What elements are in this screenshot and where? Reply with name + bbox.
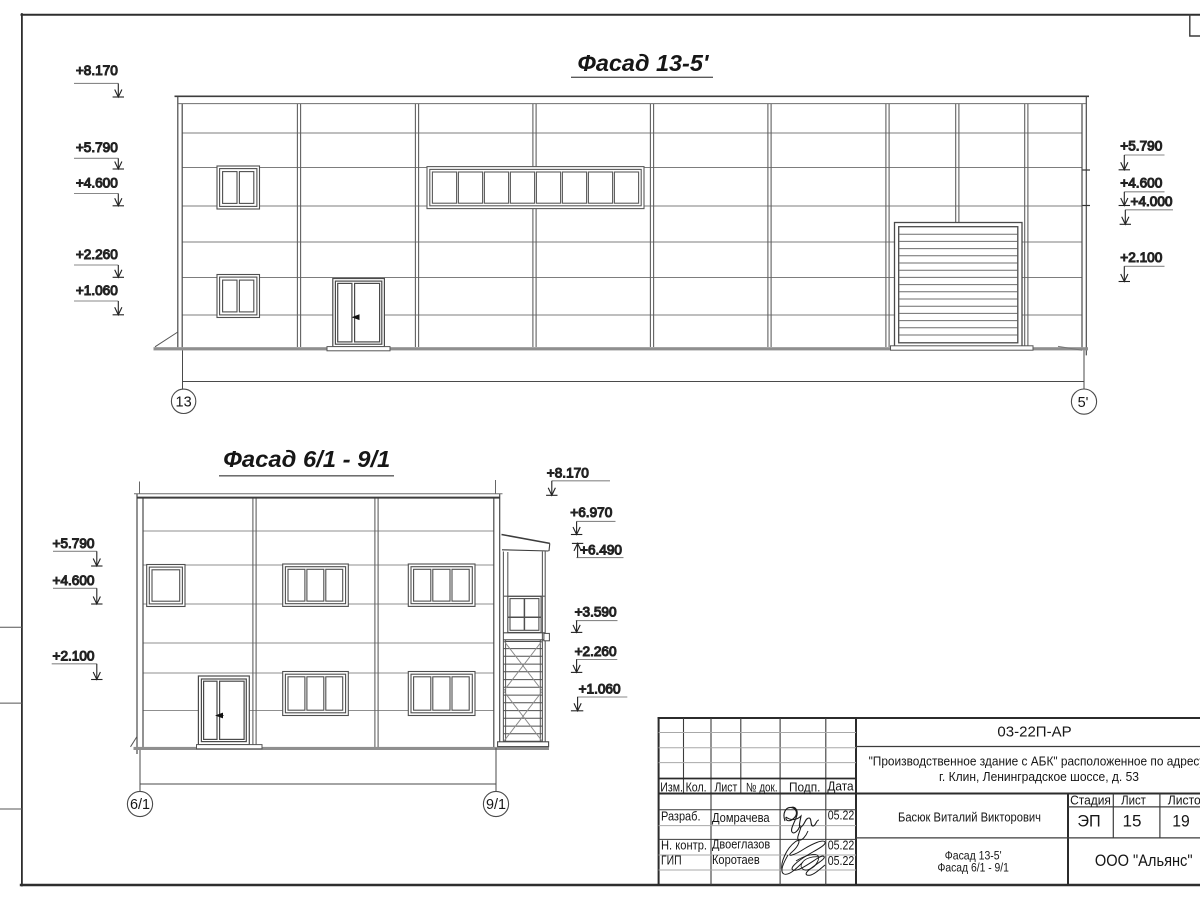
svg-text:№ док.: № док. bbox=[746, 780, 778, 794]
svg-text:+1.060: +1.060 bbox=[579, 681, 621, 696]
svg-text:Дата: Дата bbox=[827, 779, 853, 793]
svg-text:+2.100: +2.100 bbox=[53, 648, 95, 663]
svg-text:Кол.: Кол. bbox=[686, 780, 707, 794]
svg-text:Лист: Лист bbox=[1121, 793, 1146, 807]
svg-text:+4.600: +4.600 bbox=[1120, 175, 1162, 190]
svg-text:+6.490: +6.490 bbox=[580, 543, 622, 558]
svg-text:6/1: 6/1 bbox=[130, 797, 150, 813]
svg-text:5': 5' bbox=[1078, 395, 1089, 411]
svg-text:+2.260: +2.260 bbox=[76, 247, 118, 262]
svg-text:г. Клин, Ленинградское шоссе,: г. Клин, Ленинградское шоссе, д. 53 bbox=[939, 769, 1139, 784]
svg-text:Коротаев: Коротаев bbox=[712, 853, 760, 867]
svg-text:03-22П-АР: 03-22П-АР bbox=[997, 724, 1071, 741]
svg-text:05.22: 05.22 bbox=[828, 809, 855, 823]
svg-text:05.22: 05.22 bbox=[828, 854, 855, 868]
svg-text:Подп.: Подп. bbox=[789, 780, 821, 794]
svg-text:+8.170: +8.170 bbox=[547, 465, 589, 480]
svg-text:Двоеглазов: Двоеглазов bbox=[712, 838, 770, 852]
svg-text:Басюк Виталий Викторович: Басюк Виталий Викторович bbox=[898, 811, 1041, 825]
svg-text:9/1: 9/1 bbox=[486, 797, 506, 813]
svg-text:+1.060: +1.060 bbox=[76, 283, 118, 298]
svg-text:Фасад 6/1 - 9/1: Фасад 6/1 - 9/1 bbox=[223, 446, 390, 472]
svg-text:"Производственное здание с АБК: "Производственное здание с АБК" располож… bbox=[869, 754, 1200, 769]
svg-text:15: 15 bbox=[1123, 812, 1142, 831]
svg-text:19: 19 bbox=[1172, 812, 1190, 831]
svg-text:Фасад 13-5': Фасад 13-5' bbox=[578, 50, 711, 76]
svg-text:Фасад 6/1 - 9/1: Фасад 6/1 - 9/1 bbox=[938, 861, 1009, 875]
svg-text:+5.790: +5.790 bbox=[76, 140, 118, 155]
svg-text:Разраб.: Разраб. bbox=[661, 810, 701, 824]
svg-text:Стадия: Стадия bbox=[1070, 793, 1111, 807]
svg-text:Листов: Листов bbox=[1168, 793, 1200, 807]
svg-text:05.22: 05.22 bbox=[828, 839, 855, 853]
svg-text:Домрачева: Домрачева bbox=[712, 811, 770, 825]
svg-text:+6.970: +6.970 bbox=[570, 505, 612, 520]
svg-text:+5.790: +5.790 bbox=[1120, 139, 1162, 154]
svg-text:+3.590: +3.590 bbox=[575, 604, 617, 619]
svg-text:ЭП: ЭП bbox=[1077, 812, 1100, 831]
svg-text:+5.790: +5.790 bbox=[53, 536, 95, 551]
svg-text:Н. контр.: Н. контр. bbox=[661, 839, 707, 853]
svg-text:13: 13 bbox=[176, 394, 192, 410]
svg-text:+4.000: +4.000 bbox=[1131, 194, 1173, 209]
svg-text:ООО "Альянс": ООО "Альянс" bbox=[1095, 852, 1193, 870]
svg-text:+4.600: +4.600 bbox=[76, 175, 118, 190]
svg-text:Лист: Лист bbox=[715, 780, 738, 794]
svg-text:+2.260: +2.260 bbox=[575, 644, 617, 659]
svg-text:+4.600: +4.600 bbox=[53, 573, 95, 588]
svg-text:+2.100: +2.100 bbox=[1120, 250, 1162, 265]
svg-text:ГИП: ГИП bbox=[661, 854, 682, 868]
svg-text:+8.170: +8.170 bbox=[76, 63, 118, 78]
svg-text:Изм.: Изм. bbox=[660, 780, 683, 794]
